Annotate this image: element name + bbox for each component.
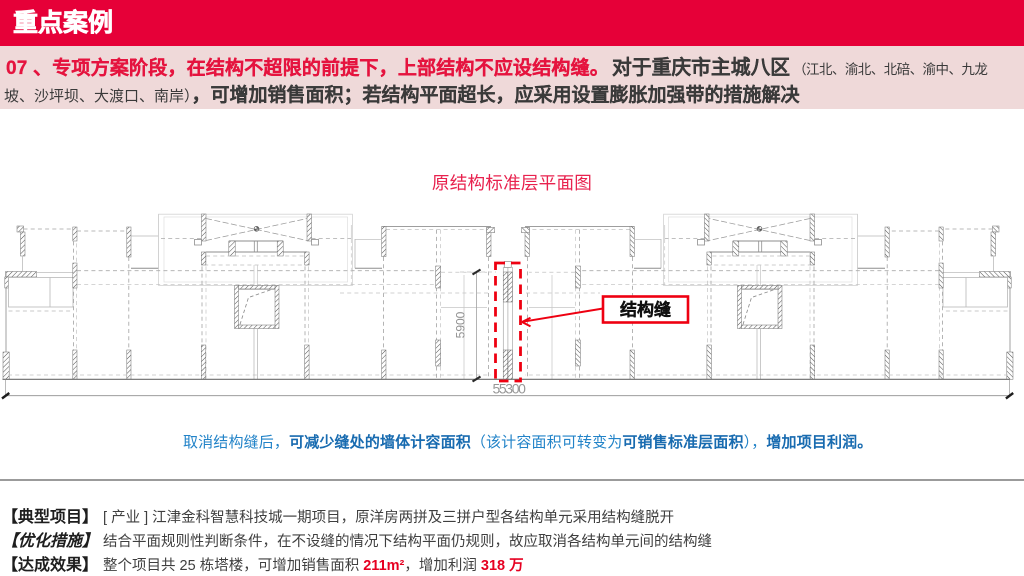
svg-text:结构缝: 结构缝 — [620, 300, 671, 320]
svg-text:5900: 5900 — [454, 311, 468, 338]
svg-text:55300: 55300 — [493, 381, 527, 397]
